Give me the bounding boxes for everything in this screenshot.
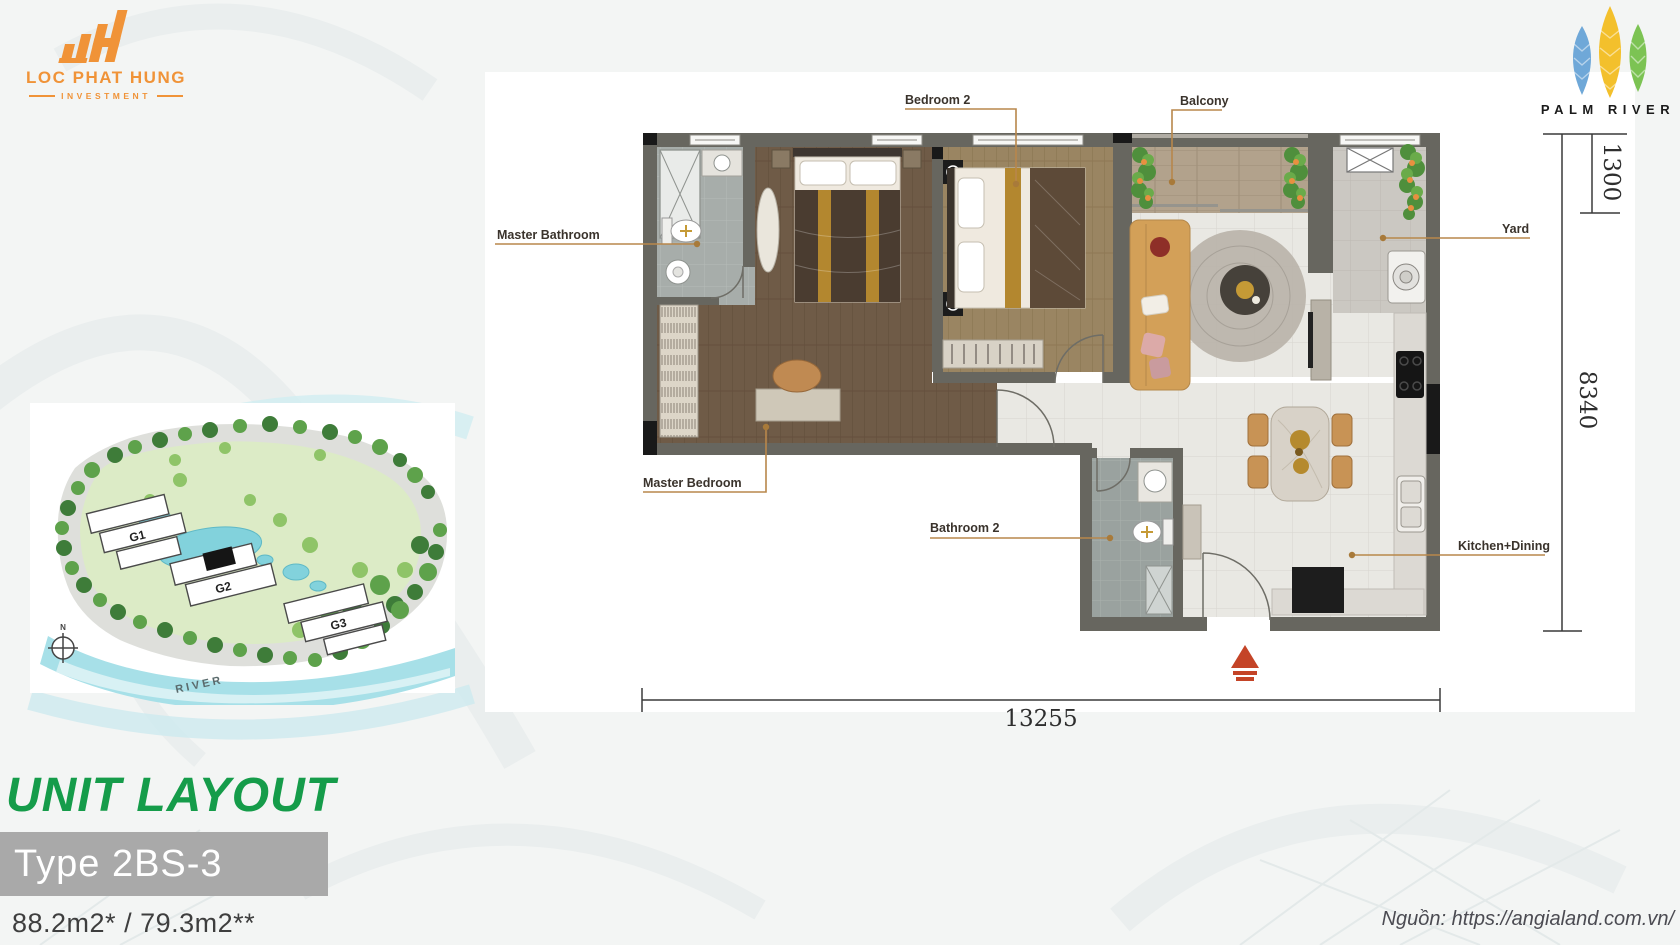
section-title: UNIT LAYOUT	[6, 768, 336, 823]
balcony-railing	[1132, 134, 1308, 138]
palm-leaves-icon	[1538, 4, 1678, 100]
developer-logo: LOC PHAT HUNG INVESTMENT	[16, 8, 196, 101]
source-credit: Nguồn: https://angialand.com.vn/	[1382, 908, 1674, 931]
label-balcony: Balcony	[1180, 94, 1229, 108]
unit-type-label: Type 2BS-3	[0, 843, 223, 886]
floor-plan: Master Bathroom Bedroom 2 Balcony Yard M…	[480, 68, 1640, 740]
developer-name: LOC PHAT HUNG	[16, 68, 196, 88]
label-master-bedroom: Master Bedroom	[643, 476, 742, 490]
label-kitchen-dining: Kitchen+Dining	[1458, 539, 1550, 553]
slide: Master Bathroom Bedroom 2 Balcony Yard M…	[0, 0, 1680, 945]
dim-total-width: 13255	[1004, 706, 1077, 732]
unit-type-box: Type 2BS-3	[0, 832, 328, 896]
developer-logo-mark	[16, 8, 196, 66]
compass-n-label: N	[60, 623, 66, 632]
site-map: G1 G2 G3 N RIVER	[20, 395, 460, 705]
dim-total-depth: 8340	[1574, 371, 1600, 430]
dim-balcony-depth: 1300	[1598, 143, 1624, 202]
label-bedroom2: Bedroom 2	[905, 93, 970, 107]
label-yard: Yard	[1502, 222, 1529, 236]
project-logo: PALM RIVER	[1538, 4, 1678, 117]
unit-areas: 88.2m2* / 79.3m2**	[12, 908, 255, 939]
project-name: PALM RIVER	[1538, 102, 1678, 117]
label-master-bathroom: Master Bathroom	[497, 228, 600, 242]
label-bathroom2: Bathroom 2	[930, 521, 1000, 535]
developer-subtitle: INVESTMENT	[61, 91, 151, 101]
